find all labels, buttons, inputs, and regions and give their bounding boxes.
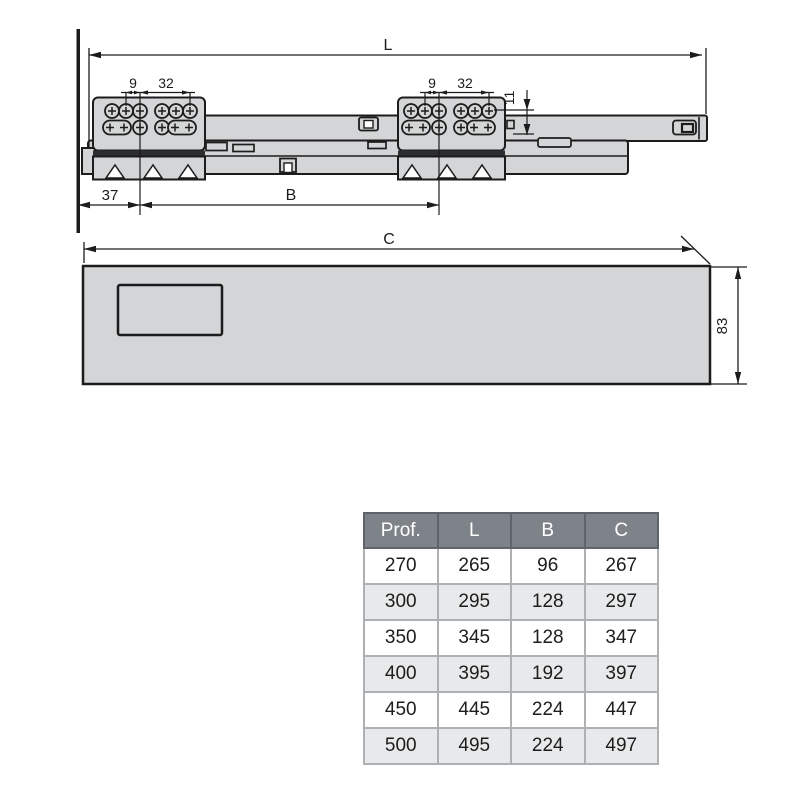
table-cell: 395 xyxy=(438,656,512,692)
dimension-front-offset: 37 xyxy=(78,187,140,208)
dim-label-37: 37 xyxy=(102,187,119,204)
header-C: C xyxy=(585,513,659,548)
table-cell: 295 xyxy=(438,584,512,620)
arrowhead xyxy=(89,52,101,58)
technical-drawing: L 9 32 9 32 11 3 xyxy=(0,0,800,470)
table-cell: 128 xyxy=(511,620,585,656)
dimension-panel-height: 83 xyxy=(711,267,747,384)
header-prof: Prof. xyxy=(364,513,438,548)
rail-tab xyxy=(206,143,227,151)
table-cell: 497 xyxy=(585,728,659,764)
arrowhead xyxy=(425,91,431,95)
bracket-side-tab xyxy=(507,121,514,129)
table-cell: 300 xyxy=(364,584,438,620)
dim-label-L: L xyxy=(384,37,393,54)
dim-label-9-rear: 9 xyxy=(428,75,436,91)
arrowhead xyxy=(128,202,140,208)
panel-cutout xyxy=(118,285,222,335)
table-cell: 265 xyxy=(438,548,512,584)
table-cell: 267 xyxy=(585,548,659,584)
table-cell: 397 xyxy=(585,656,659,692)
rail-tab xyxy=(538,138,571,147)
table-row: 500 495 224 497 xyxy=(364,728,658,764)
table-cell: 500 xyxy=(364,728,438,764)
arrowhead xyxy=(735,372,741,384)
arrowhead xyxy=(134,91,140,95)
table-cell: 224 xyxy=(511,728,585,764)
size-table-container: Prof. L B C 270 265 96 267 300 295 128 2… xyxy=(363,512,659,765)
header-L: L xyxy=(438,513,512,548)
front-mounting-bracket xyxy=(93,98,205,180)
table-cell: 350 xyxy=(364,620,438,656)
rail-lower-clip xyxy=(280,159,296,173)
arrowhead xyxy=(690,52,702,58)
arrowhead xyxy=(140,202,152,208)
arrowhead xyxy=(524,99,531,110)
table-cell: 192 xyxy=(511,656,585,692)
table-cell: 445 xyxy=(438,692,512,728)
arrowhead xyxy=(439,90,447,94)
table-cell: 447 xyxy=(585,692,659,728)
arrowhead xyxy=(182,90,190,94)
table-cell: 450 xyxy=(364,692,438,728)
table-row: 270 265 96 267 xyxy=(364,548,658,584)
table-row: 300 295 128 297 xyxy=(364,584,658,620)
arrowhead xyxy=(126,91,132,95)
table-cell: 224 xyxy=(511,692,585,728)
header-B: B xyxy=(511,513,585,548)
size-table-header-row: Prof. L B C xyxy=(364,513,658,548)
table-cell: 345 xyxy=(438,620,512,656)
table-row: 450 445 224 447 xyxy=(364,692,658,728)
rail-latch xyxy=(673,121,696,135)
arrowhead xyxy=(427,202,439,208)
table-cell: 96 xyxy=(511,548,585,584)
arrowhead xyxy=(140,90,148,94)
dimension-panel-length: C xyxy=(84,231,710,264)
arrowhead xyxy=(735,267,741,279)
size-table: Prof. L B C 270 265 96 267 300 295 128 2… xyxy=(363,512,659,765)
table-cell: 270 xyxy=(364,548,438,584)
arrowhead xyxy=(433,91,439,95)
dim-label-11: 11 xyxy=(501,91,517,106)
arrowhead xyxy=(481,90,489,94)
table-cell: 128 xyxy=(511,584,585,620)
table-cell: 297 xyxy=(585,584,659,620)
rail-clip xyxy=(359,118,378,131)
product-dimension-sheet: L 9 32 9 32 11 3 xyxy=(0,0,800,800)
table-cell: 347 xyxy=(585,620,659,656)
dim-label-32-rear: 32 xyxy=(457,75,473,91)
table-cell: 400 xyxy=(364,656,438,692)
front-panel-line xyxy=(77,29,81,233)
table-row: 350 345 128 347 xyxy=(364,620,658,656)
drawer-panel-view xyxy=(83,266,710,384)
table-cell: 495 xyxy=(438,728,512,764)
dimension-bracket-span: B xyxy=(140,187,439,208)
arrowhead xyxy=(84,246,96,252)
dim-label-83: 83 xyxy=(714,318,731,335)
rail-tab xyxy=(233,145,254,152)
dim-label-9-front: 9 xyxy=(129,75,137,91)
rail-tab xyxy=(368,142,386,149)
table-row: 400 395 192 397 xyxy=(364,656,658,692)
dim-label-B: B xyxy=(286,187,297,204)
dim-label-32-front: 32 xyxy=(158,75,174,91)
dim-label-C: C xyxy=(383,231,395,248)
